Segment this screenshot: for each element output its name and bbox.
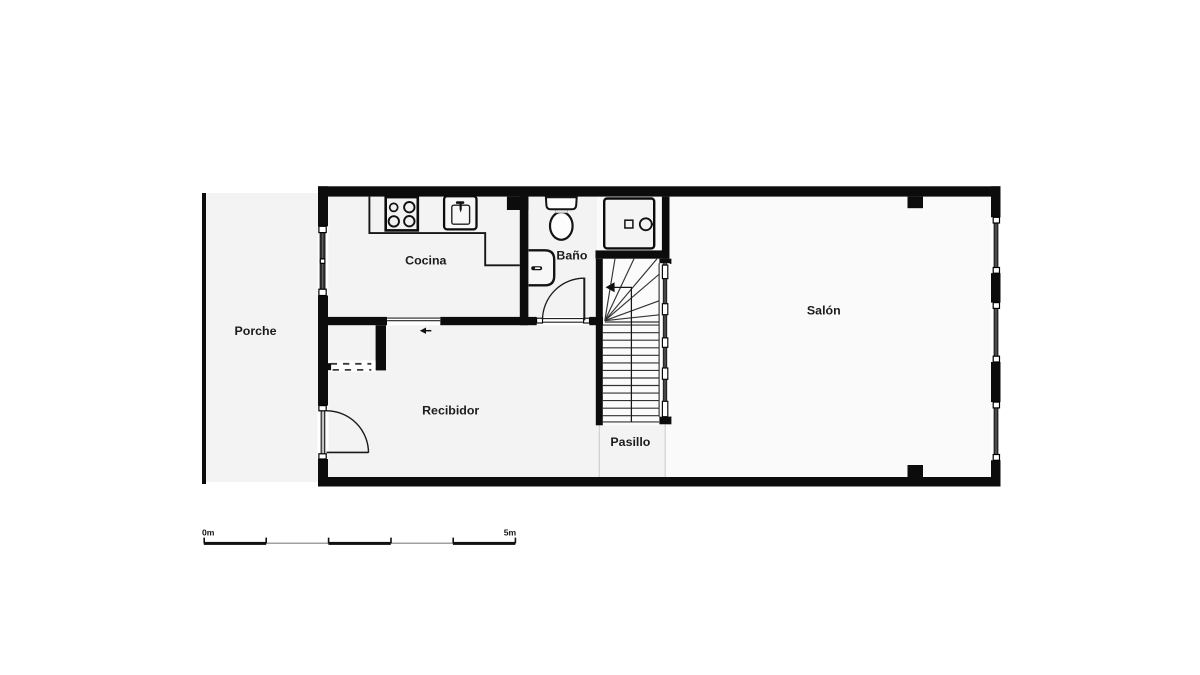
svg-text:Pasillo: Pasillo (610, 435, 650, 449)
svg-text:Baño: Baño (556, 249, 587, 263)
svg-text:0m: 0m (202, 527, 215, 537)
svg-text:Cocina: Cocina (405, 253, 446, 267)
svg-text:Porche: Porche (234, 324, 276, 338)
svg-text:Recibidor: Recibidor (422, 404, 479, 418)
svg-text:Salón: Salón (807, 304, 841, 318)
svg-text:5m: 5m (504, 527, 517, 537)
